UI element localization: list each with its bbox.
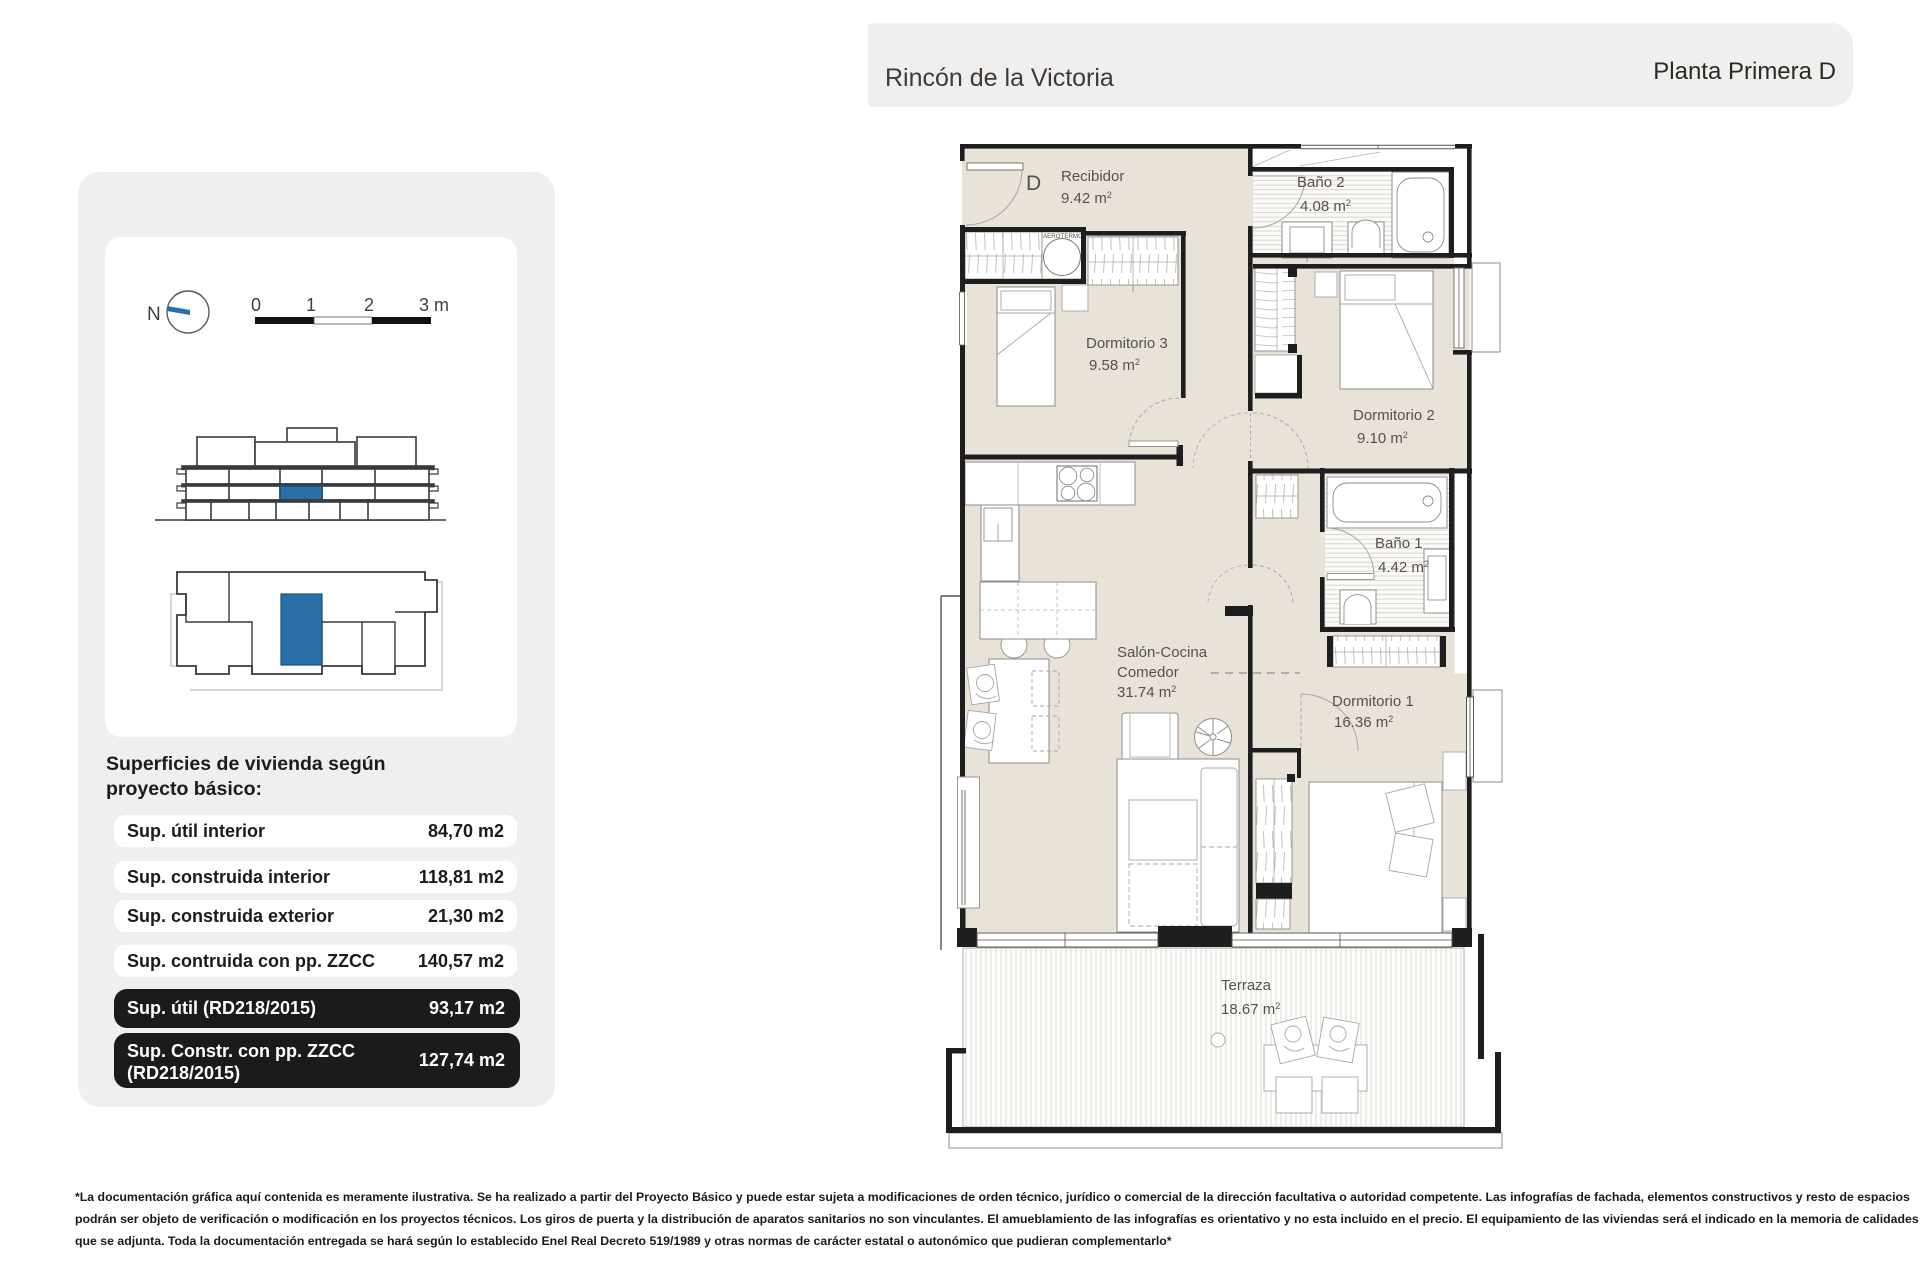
svg-text:4.08 m2: 4.08 m2 <box>1300 198 1351 215</box>
svg-text:AEROTERMO: AEROTERMO <box>1043 233 1083 240</box>
svg-text:D: D <box>1026 172 1041 195</box>
svg-text:Baño 2: Baño 2 <box>1297 174 1345 191</box>
svg-text:31.74 m2: 31.74 m2 <box>1117 684 1176 701</box>
svg-text:9.42 m2: 9.42 m2 <box>1061 190 1112 207</box>
svg-text:9.10 m2: 9.10 m2 <box>1357 430 1408 447</box>
svg-text:Dormitorio 3: Dormitorio 3 <box>1086 335 1168 352</box>
svg-text:Baño 1: Baño 1 <box>1375 535 1423 552</box>
svg-text:16.36 m2: 16.36 m2 <box>1334 714 1393 731</box>
svg-text:Terraza: Terraza <box>1221 977 1272 994</box>
svg-text:Recibidor: Recibidor <box>1061 168 1124 185</box>
svg-text:4.42 m2: 4.42 m2 <box>1378 559 1429 576</box>
svg-text:Dormitorio 1: Dormitorio 1 <box>1332 693 1414 710</box>
svg-text:Comedor: Comedor <box>1117 664 1179 681</box>
svg-text:9.58 m2: 9.58 m2 <box>1089 357 1140 374</box>
svg-text:Dormitorio 2: Dormitorio 2 <box>1353 407 1435 424</box>
svg-text:Salón-Cocina: Salón-Cocina <box>1117 644 1208 661</box>
svg-text:18.67 m2: 18.67 m2 <box>1221 1001 1280 1018</box>
